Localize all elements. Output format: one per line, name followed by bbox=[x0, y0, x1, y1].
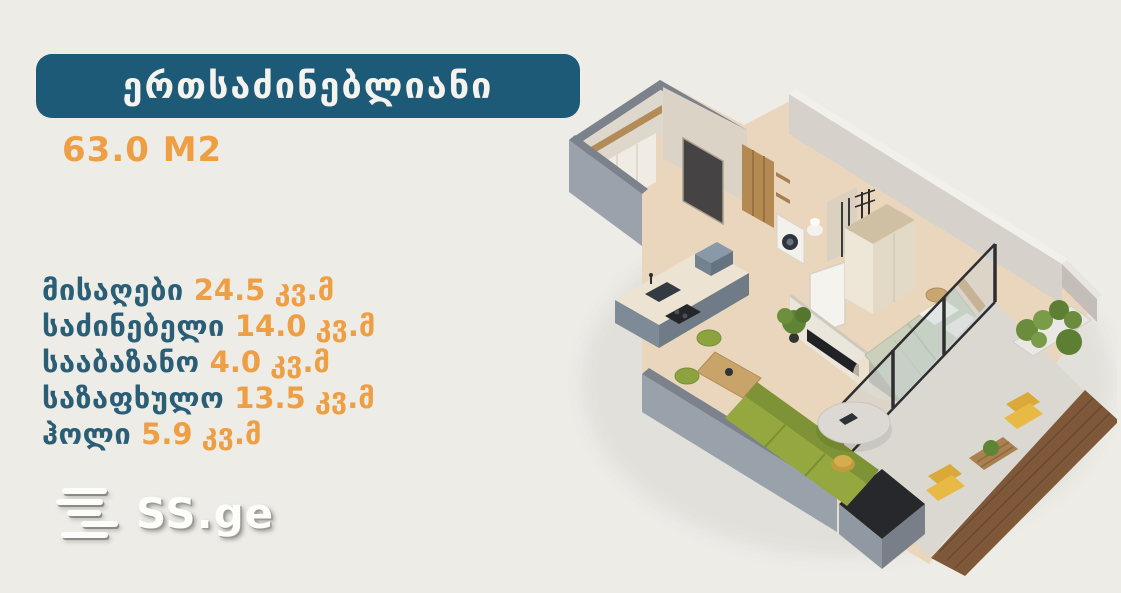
room-row-summer: საზაფხულო13.5კვ.მ bbox=[42, 380, 375, 416]
room-row-bedroom: საძინებელი14.0კვ.მ bbox=[42, 308, 375, 344]
ssge-logo-text: SS.ge bbox=[136, 489, 274, 538]
room-unit: კვ.მ bbox=[202, 417, 262, 451]
room-value: 13.5 bbox=[234, 381, 306, 415]
room-area-list: მისაღები24.5კვ.მ საძინებელი14.0კვ.მ სააბ… bbox=[42, 272, 375, 452]
room-row-hall: ჰოლი5.9კვ.მ bbox=[42, 416, 375, 452]
room-label: ჰოლი bbox=[42, 417, 131, 451]
room-label: სააბაზანო bbox=[42, 345, 200, 379]
room-value: 5.9 bbox=[141, 417, 192, 451]
coffee-table bbox=[816, 402, 892, 452]
room-value: 14.0 bbox=[235, 309, 307, 343]
room-unit: კვ.მ bbox=[315, 309, 375, 343]
total-area-label: 63.0 M2 bbox=[62, 130, 222, 170]
apartment-type-label: ერთსაძინებლიანი bbox=[123, 66, 494, 107]
room-label: საძინებელი bbox=[42, 309, 225, 343]
room-row-living: მისაღები24.5კვ.მ bbox=[42, 272, 375, 308]
potted-plant bbox=[983, 440, 999, 456]
ssge-bars-icon bbox=[56, 484, 120, 542]
room-value: 24.5 bbox=[194, 273, 266, 307]
room-row-bathroom: სააბაზანო4.0კვ.მ bbox=[42, 344, 375, 380]
apartment-type-badge: ერთსაძინებლიანი bbox=[36, 54, 580, 118]
room-unit: კვ.მ bbox=[315, 381, 375, 415]
listing-infographic: { "header": { "type_badge": "ერთსაძინებლ… bbox=[0, 0, 1121, 593]
floorplan-3d-render bbox=[557, 52, 1117, 592]
room-unit: კვ.მ bbox=[274, 273, 334, 307]
room-label: საზაფხულო bbox=[42, 381, 224, 415]
ssge-logo: SS.ge bbox=[56, 484, 274, 542]
room-label: მისაღები bbox=[42, 273, 184, 307]
room-value: 4.0 bbox=[210, 345, 261, 379]
room-unit: კვ.მ bbox=[270, 345, 330, 379]
